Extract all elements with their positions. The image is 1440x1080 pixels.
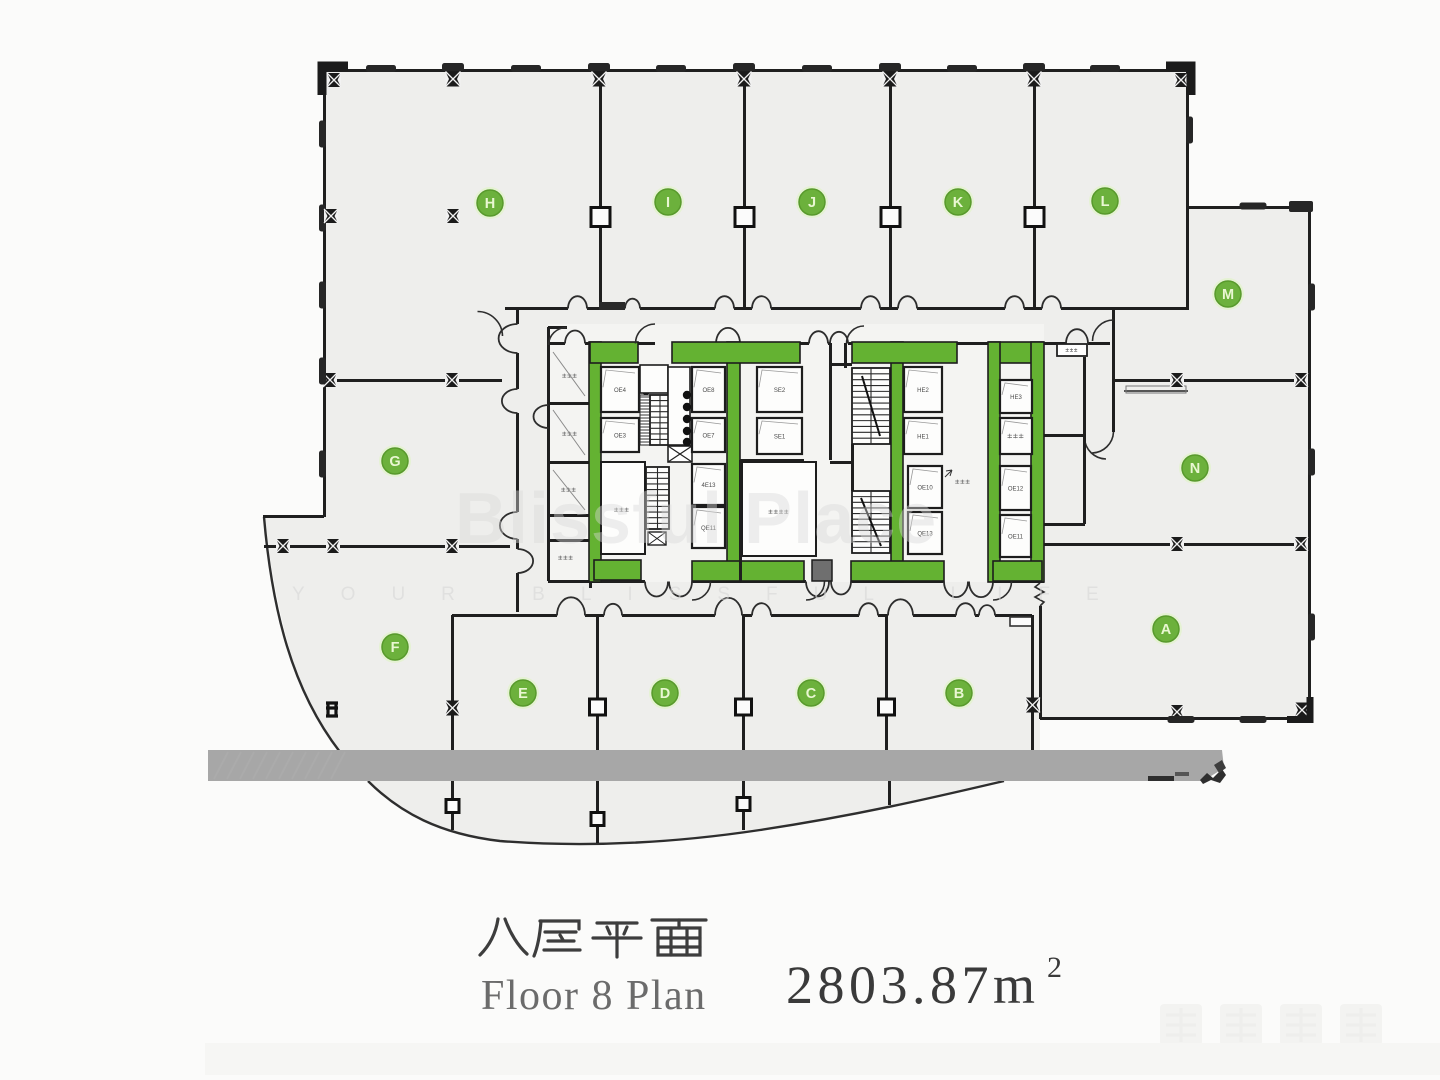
svg-text:Floor 8 Plan: Floor 8 Plan <box>481 973 707 1019</box>
svg-text:Blissful Place: Blissful Place <box>455 479 937 559</box>
svg-text:HE2: HE2 <box>917 388 929 394</box>
svg-text:OE11: OE11 <box>1008 535 1024 541</box>
svg-text:HE3: HE3 <box>1010 395 1022 401</box>
svg-text:SE2: SE2 <box>774 388 786 394</box>
svg-text:E: E <box>518 686 528 702</box>
svg-text:N: N <box>1190 461 1200 477</box>
svg-text:2803.87m: 2803.87m <box>786 955 1040 1015</box>
svg-text:SE1: SE1 <box>774 435 786 441</box>
svg-text:HE1: HE1 <box>917 435 929 441</box>
svg-text:B: B <box>954 686 964 702</box>
svg-text:YOUR BLISSFUL LIFE: YOUR BLISSFUL LIFE <box>292 584 1135 605</box>
svg-text:C: C <box>806 686 817 702</box>
svg-text:I: I <box>666 195 670 211</box>
svg-text:F: F <box>391 640 400 656</box>
svg-text:H: H <box>485 196 495 212</box>
svg-text:D: D <box>660 686 670 702</box>
svg-text:L: L <box>1101 194 1110 210</box>
svg-text:OE8: OE8 <box>702 388 715 394</box>
svg-text:M: M <box>1222 287 1234 303</box>
svg-text:K: K <box>953 195 964 211</box>
svg-text:OE12: OE12 <box>1008 487 1024 493</box>
svg-text:J: J <box>808 195 816 211</box>
svg-text:G: G <box>389 454 400 470</box>
svg-text:OE7: OE7 <box>702 434 715 440</box>
svg-text:OE4: OE4 <box>614 388 627 394</box>
svg-text:OE3: OE3 <box>614 434 627 440</box>
svg-text:A: A <box>1161 622 1172 638</box>
svg-text:2: 2 <box>1047 951 1062 984</box>
